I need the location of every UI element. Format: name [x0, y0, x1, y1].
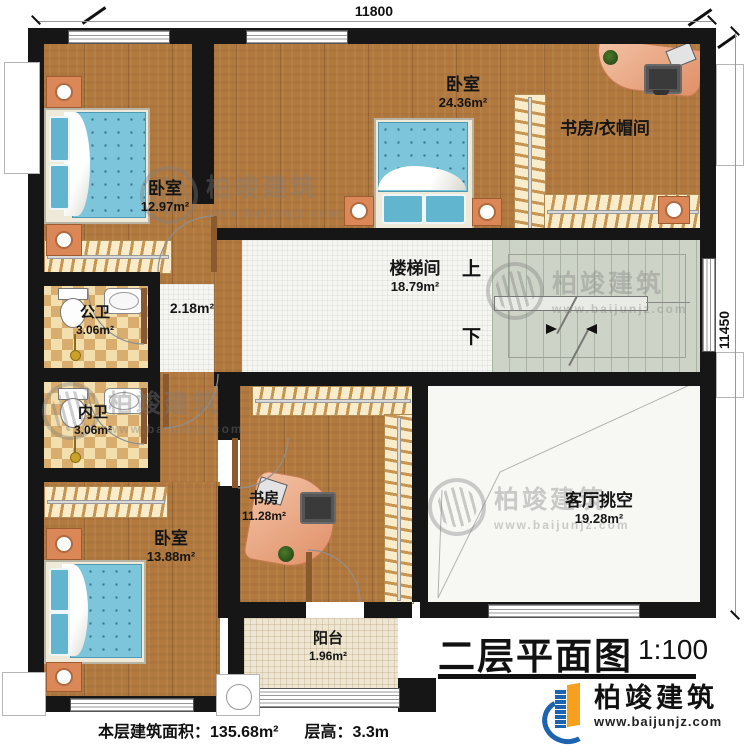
brand-logo: 柏竣建筑 www.baijunjz.com — [544, 684, 722, 736]
room-label-balcony: 阳台1.96m² — [288, 630, 368, 664]
wall-column — [398, 678, 436, 712]
room-label-bedroom-3: 卧室13.88m² — [126, 528, 216, 566]
bed-pillow — [382, 194, 424, 224]
window — [488, 604, 640, 618]
dimension-right-value: 11450 — [716, 300, 732, 360]
bed-pillow — [49, 164, 70, 210]
balcony-railing — [244, 688, 400, 708]
bed-pillow — [49, 116, 70, 162]
wardrobe-bedroom-3 — [44, 486, 168, 518]
plant-icon — [603, 50, 618, 65]
window-sill — [4, 62, 40, 174]
window — [68, 30, 170, 44]
wall — [364, 602, 412, 618]
wall — [28, 368, 160, 382]
stair-down-label: 下 — [462, 322, 481, 349]
nightstand — [46, 224, 82, 256]
lamp-icon — [55, 83, 73, 101]
floor-drain-icon — [70, 452, 81, 463]
window — [70, 698, 194, 712]
plan-scale: 1:100 — [638, 634, 708, 666]
room-label-inner-bathroom: 内卫3.06m² — [58, 404, 128, 438]
corner-tick — [717, 34, 737, 49]
dimension-tick — [31, 15, 41, 25]
floor-plan: 上 下 柏竣建筑 www.baijun — [0, 0, 750, 754]
stair-rail-line — [646, 302, 690, 303]
hallway-area-label: 2.18m² — [158, 300, 226, 318]
wall — [218, 386, 240, 440]
dresser — [658, 196, 690, 224]
wardrobe-study-top — [252, 386, 414, 416]
floor-area-label: 本层建筑面积： — [98, 724, 210, 741]
lamp-icon — [55, 535, 73, 553]
dimension-line-top — [36, 21, 714, 22]
room-label-bedroom-1: 卧室12.97m² — [120, 178, 210, 216]
monitor-stand — [653, 90, 669, 95]
dimension-top-value: 11800 — [346, 3, 402, 19]
nightstand — [46, 528, 82, 560]
door-arc — [308, 550, 360, 602]
nightstand — [472, 198, 502, 226]
room-label-stairwell: 楼梯间18.79m² — [360, 258, 470, 296]
wardrobe-bedroom-2 — [514, 94, 546, 232]
bed-pillow — [49, 612, 70, 656]
plant-icon — [278, 546, 294, 562]
wardrobe-study-right — [384, 414, 414, 604]
lamp-icon — [478, 203, 496, 221]
nightstand — [46, 76, 82, 108]
plan-title: 二层平面图 — [438, 626, 633, 680]
door-arc — [158, 216, 214, 272]
door-arc — [164, 374, 218, 428]
wall — [28, 468, 160, 482]
room-label-study: 书房11.28m² — [222, 490, 306, 524]
nightstand — [344, 196, 374, 226]
floor-drain-icon — [70, 350, 81, 361]
stair-arrow-icon — [546, 324, 557, 334]
window-sill — [716, 64, 744, 166]
lamp-icon — [665, 201, 683, 219]
lamp-icon — [350, 202, 368, 220]
room-label-living-void: 客厅挑空19.28m² — [538, 490, 660, 528]
window — [246, 30, 348, 44]
room-label-public-bathroom: 公卫3.06m² — [60, 304, 130, 338]
bed-pillow — [49, 568, 70, 612]
floor-height-value: 3.3m — [353, 724, 389, 741]
dimension-tick — [707, 15, 717, 25]
stair-arrow-icon — [586, 324, 597, 334]
bed-pillow — [424, 194, 466, 224]
room-label-bedroom-2: 卧室24.36m² — [408, 74, 518, 112]
lamp-icon — [55, 231, 73, 249]
wall — [412, 372, 428, 602]
nightstand — [46, 662, 82, 692]
wall — [218, 602, 306, 618]
brand-name: 柏竣建筑 — [594, 684, 722, 714]
floor-height-label: 层高： — [305, 724, 353, 741]
floor-area-value: 135.68m² — [210, 724, 279, 741]
lamp-icon — [55, 668, 73, 686]
window-sill — [2, 672, 46, 716]
wall — [212, 228, 700, 240]
room-label-study-cloakroom: 书房/衣帽间 — [538, 118, 672, 139]
window — [702, 258, 716, 352]
door-arc — [238, 438, 288, 488]
brand-logo-icon — [544, 684, 588, 736]
wall — [28, 272, 160, 286]
void-fold-line — [428, 372, 700, 604]
dimension-line-right — [735, 32, 736, 616]
title-underline — [438, 674, 696, 679]
column-circle — [226, 684, 252, 710]
floor-stats: 本层建筑面积：135.68m² 层高：3.3m — [98, 718, 389, 742]
wall — [214, 372, 700, 386]
brand-url: www.baijunjz.com — [594, 714, 722, 729]
